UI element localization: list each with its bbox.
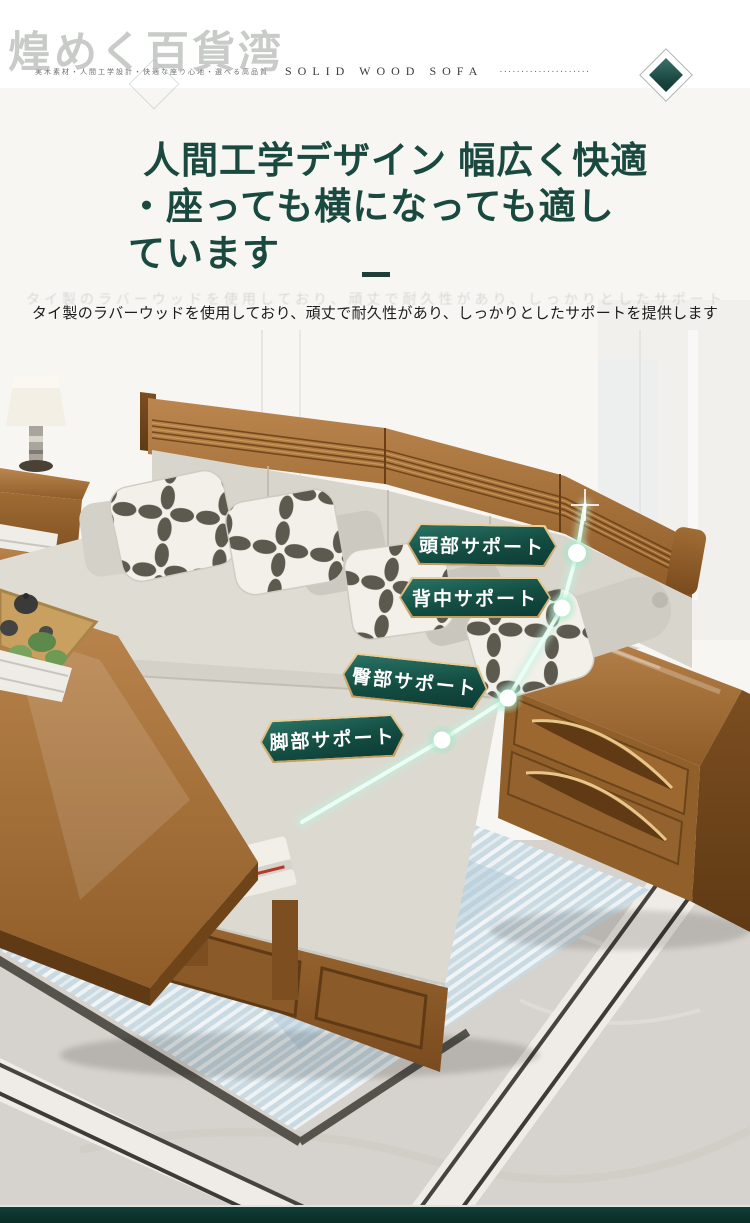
tagline-dots: ····················· xyxy=(499,66,590,77)
glow-dot-2 xyxy=(554,600,571,617)
callout-badge-leg-support: 脚部サポート xyxy=(259,713,406,764)
hero-subtitle: タイ製のラバーウッドを使用しており、頑丈で耐久性があり、しっかりとしたサポートを… xyxy=(30,302,720,323)
glow-dot-3 xyxy=(500,690,517,707)
callout-badge-back-support: 背中サポート xyxy=(399,577,551,618)
glow-dot-1 xyxy=(568,544,586,562)
glow-dot-4 xyxy=(434,732,451,749)
sofa-shadow xyxy=(60,1031,540,1079)
title-line-2: ・座っても横になっても適し xyxy=(128,184,668,230)
brand-watermark: 煌めく百貨湾 xyxy=(8,18,284,80)
title-dash xyxy=(362,272,390,277)
badge-label: 頭部サポート xyxy=(409,525,556,566)
diamond-icon-fill xyxy=(649,58,683,92)
footer-section-bar xyxy=(0,1205,750,1223)
badge-label: 背中サポート xyxy=(401,579,549,616)
page-title: 人間工学デザイン 幅広く快適 ・座っても横になっても適し ています xyxy=(128,138,668,277)
tagline-en-text: SOLID WOOD SOFA xyxy=(285,64,483,79)
cabinet-shadow xyxy=(490,910,750,950)
badge-label: 脚部サポート xyxy=(261,715,404,761)
title-line-3: ています xyxy=(128,231,668,277)
callout-badge-head-support: 頭部サポート xyxy=(407,523,558,568)
title-line-1: 人間工学デザイン 幅広く快適 xyxy=(128,138,668,184)
product-detail-page: 煌めく百貨湾 実木素材・人間工学設計・快適な座り心地・選べる高品質 SOLID … xyxy=(0,0,750,1223)
